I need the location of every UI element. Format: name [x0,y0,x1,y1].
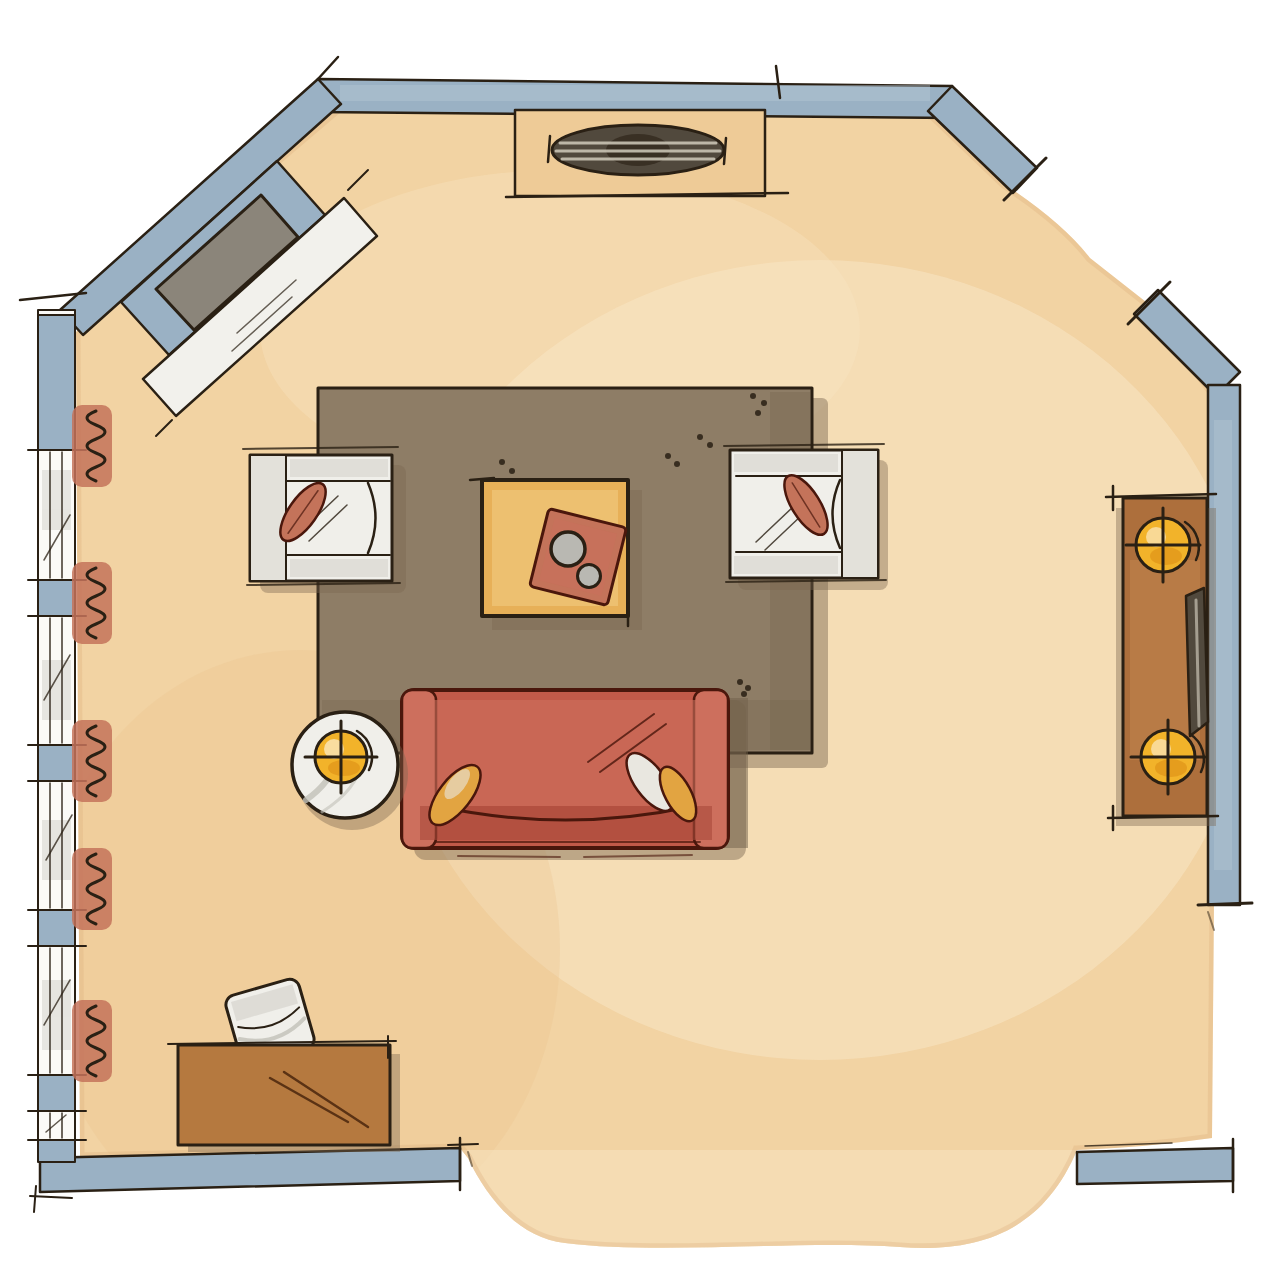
armchair-back [250,455,286,581]
wall-pier [38,1140,75,1162]
radiator [72,1000,112,1082]
right-wall-wash [1214,420,1232,870]
radiator [72,562,112,644]
wall-pier [38,745,75,781]
wall-overshoot [448,1144,478,1145]
wall-pier [38,315,75,450]
radiator [72,848,112,930]
top-wall-wash [340,85,930,101]
sofa-floor-line [458,856,560,857]
wall-overshoot [34,1186,36,1212]
bowl [578,565,601,588]
console-table [1106,486,1218,830]
radiator [72,405,112,487]
radiator [72,720,112,802]
wall-end-tick [1198,903,1252,905]
armchair-back [842,450,878,578]
armrest-wash [290,559,388,577]
armchair-left [243,447,406,593]
floor-plan-drawing [0,0,1280,1280]
floor-plan-canvas [0,0,1280,1280]
coffee-table [470,478,642,630]
desk-top [178,1045,390,1145]
armchair-right [724,444,888,590]
wall-pier [38,910,75,946]
armrest-wash [290,459,388,477]
armrest-wash [734,454,838,472]
bottom-right-wall [1077,1148,1233,1184]
wall-overshoot [30,1196,72,1198]
wall-pier [38,580,75,616]
media-cabinet [506,110,788,197]
wall-pier [38,1075,75,1111]
bowl [551,532,585,566]
sofa [402,690,748,860]
wall-overshoot [318,57,338,79]
armrest-wash [734,556,838,574]
